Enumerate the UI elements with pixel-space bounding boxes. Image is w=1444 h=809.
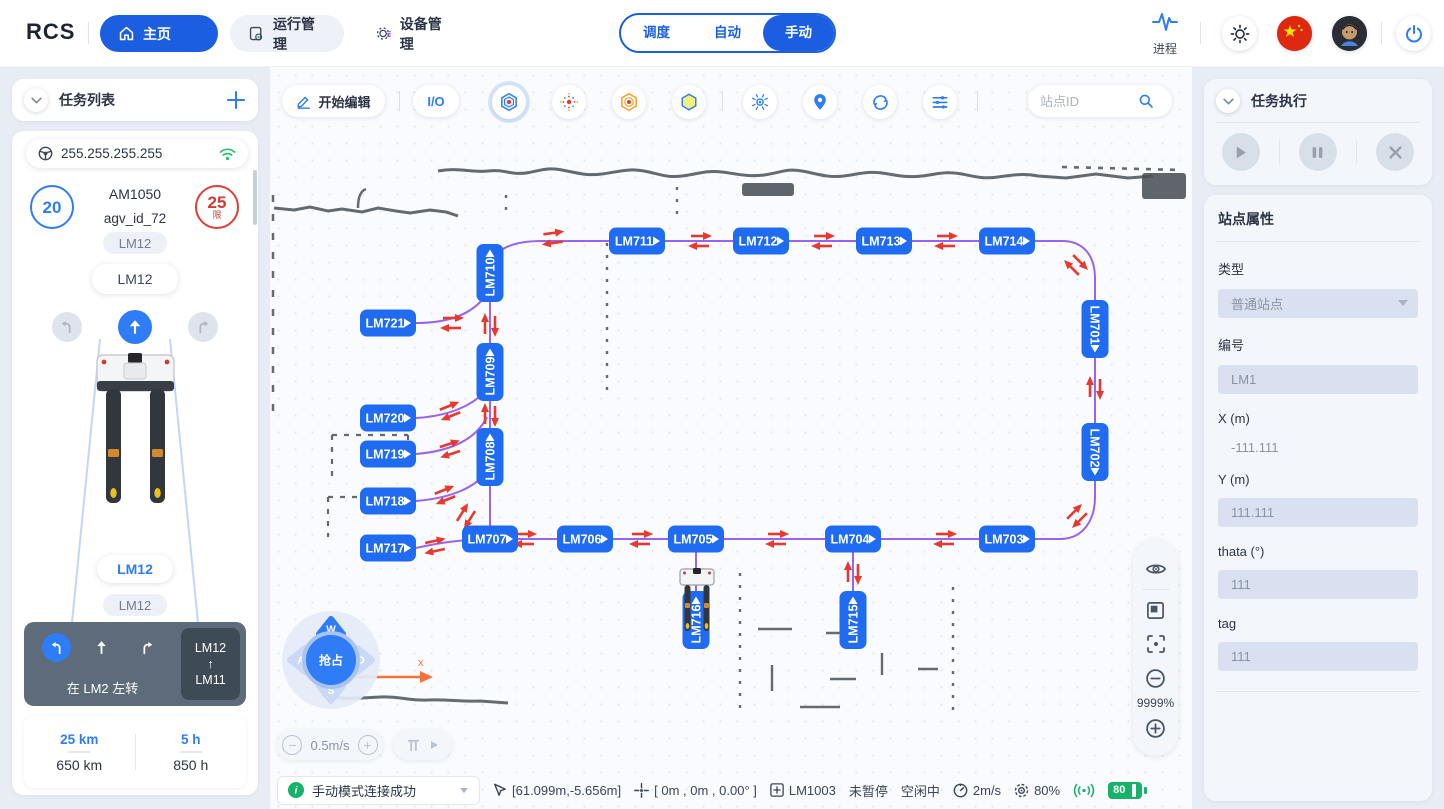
speed-increase-button[interactable]: + <box>358 735 378 755</box>
start-edit-button[interactable]: 开始编辑 <box>282 85 385 117</box>
svg-text:LM706: LM706 <box>563 533 602 547</box>
sun-icon <box>1230 24 1250 44</box>
signal-icon <box>1073 783 1095 798</box>
svg-text:LM705: LM705 <box>674 533 713 547</box>
forklift-top-view <box>97 353 174 503</box>
agv-ip-value: 255.255.255.255 <box>61 146 211 161</box>
wifi-icon <box>219 147 236 161</box>
svg-text:LM718: LM718 <box>366 495 405 509</box>
turn-left-indicator[interactable] <box>52 312 82 342</box>
app-logo: RCS <box>26 19 75 45</box>
eye-icon <box>1145 561 1167 577</box>
cursor-position: [61.099m,-5.656m] <box>493 783 621 798</box>
play-icon <box>1233 145 1248 160</box>
scrollbar-thumb[interactable] <box>253 170 257 225</box>
minimap-button[interactable] <box>1143 597 1169 623</box>
svg-text:LM701: LM701 <box>1088 306 1102 345</box>
manual-joystick[interactable]: W A S D 抢占 <box>281 610 381 710</box>
mode-manual[interactable]: 手动 <box>763 15 834 51</box>
collapse-task-list-button[interactable] <box>24 88 48 112</box>
distance-stats: 25 km650 km <box>24 732 135 773</box>
speed-value: 0.5m/s <box>310 738 349 753</box>
field-x-value[interactable]: -111.111 <box>1218 440 1418 455</box>
map-view-rail: 9999% <box>1133 540 1178 756</box>
search-icon[interactable] <box>1138 93 1154 109</box>
turn-right-icon <box>139 640 155 656</box>
svg-text:LM710: LM710 <box>484 258 498 297</box>
station-LM702[interactable]: LM702 <box>1082 423 1109 481</box>
zoom-in-icon <box>1145 718 1166 739</box>
info-icon: i <box>288 782 304 798</box>
tab-home[interactable]: 主页 <box>100 15 218 52</box>
zoom-in-button[interactable] <box>1143 715 1169 741</box>
field-id-label: 编号 <box>1218 335 1418 354</box>
target-icon <box>1014 783 1029 798</box>
task-cancel-button[interactable] <box>1376 133 1414 171</box>
edit-pen-icon <box>296 94 311 109</box>
tab-device-management[interactable]: 设备管理 <box>358 15 464 52</box>
focus-icon <box>1146 634 1166 654</box>
current-station-pill: LM12 <box>103 232 167 254</box>
manual-speed-control: − 0.5m/s + <box>277 730 383 760</box>
divider <box>1143 589 1169 590</box>
area-hexagon-icon <box>678 91 700 113</box>
field-theta-input[interactable]: 111 <box>1218 570 1418 599</box>
svg-text:LM709: LM709 <box>484 357 498 396</box>
station-LM720[interactable]: LM720 <box>360 405 416 432</box>
tab-home-label: 主页 <box>143 24 171 44</box>
add-task-icon[interactable] <box>226 90 246 110</box>
refresh-icon <box>870 92 891 113</box>
io-label: I/O <box>427 94 444 109</box>
station-LM710[interactable]: LM710 <box>477 244 504 302</box>
rcs-app: RCS 主页 运行管理 设备管理 调度 自动 手动 进程 <box>0 0 1444 809</box>
select-chevron-icon <box>1398 300 1408 306</box>
svg-text:LM704: LM704 <box>831 533 870 547</box>
station-LM703[interactable]: LM703 <box>979 526 1035 553</box>
joystick-preempt-button[interactable]: 抢占 <box>304 633 358 687</box>
task-list-header: 任务列表 <box>12 79 258 121</box>
svg-text:i: i <box>295 786 298 797</box>
filter-settings-button[interactable] <box>923 85 957 119</box>
chevron-down-icon <box>31 97 42 104</box>
map-walls <box>273 167 1182 711</box>
station-LM705[interactable]: LM705 <box>668 526 724 553</box>
nav-segment-card: LM12 ↑ LM11 <box>181 628 240 700</box>
steering-wheel-icon <box>38 146 53 161</box>
divider <box>977 91 978 111</box>
field-theta-label: thata (°) <box>1218 544 1418 559</box>
point-cloud-icon <box>558 91 580 113</box>
layer-robot-toggle[interactable] <box>492 85 526 119</box>
nav-turn-right-button[interactable] <box>132 633 161 662</box>
lidar-icon <box>749 91 771 113</box>
divider <box>88 22 89 44</box>
field-tag-label: tag <box>1218 616 1418 631</box>
svg-text:LM712: LM712 <box>739 235 778 249</box>
language-flag-button[interactable] <box>1277 16 1312 51</box>
route-arrow <box>436 398 465 424</box>
status-message: 手动模式连接成功 <box>312 781 451 800</box>
go-straight-indicator[interactable] <box>118 310 152 344</box>
station-LM721[interactable]: LM721 <box>360 310 416 337</box>
task-exec-title: 任务执行 <box>1251 91 1307 111</box>
agv-model: AM1050 <box>75 186 195 202</box>
divider <box>399 91 400 111</box>
nav-from-station: LM12 <box>195 641 226 655</box>
divider <box>722 91 723 111</box>
next-station-pill[interactable]: LM12 <box>92 264 178 294</box>
io-button[interactable]: I/O <box>413 85 459 117</box>
start-edit-label: 开始编辑 <box>318 92 370 111</box>
task-list-sidebar: 任务列表 <box>0 67 270 809</box>
field-y-input[interactable]: 111.111 <box>1218 498 1418 527</box>
waveform-icon <box>1152 12 1178 32</box>
avatar-icon <box>1332 16 1367 51</box>
route-arrow <box>540 227 566 248</box>
turn-right-icon <box>195 319 211 335</box>
tab-ops-label: 运行管理 <box>273 14 326 54</box>
svg-text:LM717: LM717 <box>366 542 405 556</box>
pause-state: 未暂停 <box>849 781 888 800</box>
svg-text:LM715: LM715 <box>847 605 861 644</box>
crosshair-icon <box>634 783 649 798</box>
tab-device-label: 设备管理 <box>400 14 446 54</box>
power-button[interactable] <box>1396 16 1431 51</box>
top-navbar: RCS 主页 运行管理 设备管理 调度 自动 手动 进程 <box>0 0 1444 67</box>
device-icon <box>376 24 392 43</box>
turn-left-icon <box>59 319 75 335</box>
speed-limit-badge: 25限 <box>195 185 239 229</box>
station-LM704[interactable]: LM704 <box>825 526 881 553</box>
nav-turn-left-button[interactable] <box>42 633 71 662</box>
nav-to-station: LM11 <box>195 673 225 687</box>
process-button[interactable]: 进程 <box>1142 12 1188 57</box>
idle-state: 空闲中 <box>901 781 940 800</box>
station-LM709[interactable]: LM709 <box>477 343 504 401</box>
mode-switch: 调度 自动 手动 <box>619 13 836 53</box>
visibility-button[interactable] <box>1143 556 1169 582</box>
divider <box>1381 22 1382 44</box>
station-LM718[interactable]: LM718 <box>360 488 416 515</box>
layer-pointcloud-toggle[interactable] <box>552 85 586 119</box>
power-icon <box>1404 24 1424 44</box>
status-bar: i 手动模式连接成功 [61.099m,-5.656m] [ 0m , 0m ,… <box>277 773 1182 807</box>
field-tag-input[interactable]: 111 <box>1218 642 1418 671</box>
map-pin-icon <box>810 92 830 112</box>
svg-text:LM713: LM713 <box>862 235 901 249</box>
field-type-select[interactable]: 普通站点 <box>1218 289 1418 318</box>
center-focus-button[interactable] <box>1143 631 1169 657</box>
agv-card: 255.255.255.255 20 25限 AM1050 agv_id_72 … <box>12 131 258 795</box>
station-LM713[interactable]: LM713 <box>856 228 912 255</box>
field-type-label: 类型 <box>1218 259 1418 278</box>
task-list-title: 任务列表 <box>59 90 226 110</box>
svg-text:LM703: LM703 <box>985 533 1024 547</box>
field-type-value: 普通站点 <box>1231 294 1283 313</box>
task-play-button[interactable] <box>1222 133 1260 171</box>
speed-decrease-button[interactable]: − <box>282 735 302 755</box>
fork-play-icon <box>429 740 439 750</box>
station-LM701[interactable]: LM701 <box>1082 300 1109 358</box>
svg-text:LM721: LM721 <box>366 317 405 331</box>
field-y-label: Y (m) <box>1218 472 1418 487</box>
field-y-value: 111.111 <box>1231 505 1274 520</box>
route-arrow <box>436 437 464 462</box>
pause-icon <box>1311 146 1324 159</box>
divider <box>1200 22 1201 44</box>
fork-icon <box>406 738 421 753</box>
station-properties-title: 站点属性 <box>1218 209 1418 229</box>
field-id-value: LM1 <box>1231 372 1256 387</box>
tab-operation-management[interactable]: 运行管理 <box>230 15 344 52</box>
user-avatar[interactable] <box>1332 16 1367 51</box>
route-arrow <box>431 482 460 508</box>
divider <box>1216 691 1420 692</box>
status-message-select[interactable]: i 手动模式连接成功 <box>277 776 480 805</box>
svg-text:LM711: LM711 <box>615 235 653 249</box>
navigation-card: LM12 ↑ LM11 在 LM2 左转 <box>24 622 246 706</box>
task-execution-card: 任务执行 <box>1204 79 1432 185</box>
station-LM708[interactable]: LM708 <box>477 428 504 486</box>
refresh-button[interactable] <box>863 85 897 119</box>
plus-square-icon <box>770 783 784 797</box>
route-arrow <box>440 314 464 332</box>
station-LM715[interactable]: LM715 <box>840 591 867 649</box>
speedometer-icon <box>953 783 968 798</box>
svg-text:LM708: LM708 <box>484 442 498 481</box>
mode-dispatch[interactable]: 调度 <box>621 15 692 51</box>
mode-auto[interactable]: 自动 <box>692 15 763 51</box>
collapse-task-exec-button[interactable] <box>1216 89 1240 113</box>
joystick-preempt-label: 抢占 <box>319 653 343 668</box>
nav-straight-button[interactable] <box>87 633 116 662</box>
hours-stats: 5 h850 h <box>136 732 247 773</box>
sliders-icon <box>930 92 950 112</box>
chevron-down-icon <box>1223 98 1234 105</box>
speed-badge: 20 <box>30 185 74 229</box>
field-theta-value: 111 <box>1231 577 1251 592</box>
battery-level: 80 <box>1113 784 1125 796</box>
zoom-out-icon <box>1145 668 1166 689</box>
turn-right-indicator[interactable] <box>188 312 218 342</box>
svg-text:LM719: LM719 <box>366 448 405 462</box>
field-tag-value: 111 <box>1231 649 1251 664</box>
process-label: 进程 <box>1142 40 1188 57</box>
station-LM712[interactable]: LM712 <box>733 228 789 255</box>
turn-left-icon <box>49 640 65 656</box>
axis-x-label: x <box>418 657 424 669</box>
up-arrow-icon <box>126 318 144 336</box>
fork-control[interactable] <box>393 730 452 760</box>
station-properties-panel: 站点属性 类型 普通站点 编号 LM1 X (m) -111.111 Y (m)… <box>1204 195 1432 801</box>
minimap-icon <box>1146 601 1165 620</box>
dropdown-chevron-icon <box>459 787 469 794</box>
theme-toggle-button[interactable] <box>1222 16 1257 51</box>
robot-hexagon-icon <box>498 91 520 113</box>
map-canvas[interactable]: LM710LM709LM708LM711LM712LM713LM714LM701… <box>270 67 1192 809</box>
slam-map: LM710LM709LM708LM711LM712LM713LM714LM701… <box>270 67 1192 809</box>
svg-text:LM720: LM720 <box>366 412 405 426</box>
svg-text:LM702: LM702 <box>1088 429 1102 468</box>
china-flag-icon <box>1277 16 1312 51</box>
svg-text:LM716: LM716 <box>690 605 704 644</box>
zoom-level: 9999% <box>1137 696 1174 710</box>
battery-indicator: 80 <box>1108 782 1142 799</box>
lidar-scan-button[interactable] <box>743 85 777 119</box>
current-station: LM1003 <box>770 783 836 798</box>
station-search-input[interactable] <box>1040 94 1130 109</box>
odometer-card: 25 km650 km 5 h850 h <box>24 716 246 788</box>
nav-instruction: 在 LM2 左转 <box>24 678 181 697</box>
up-arrow-icon <box>93 639 110 656</box>
speed-state: 2m/s <box>953 783 1001 798</box>
close-icon <box>1389 146 1402 159</box>
zoom-out-button[interactable] <box>1143 665 1169 691</box>
station-hexagon-icon <box>618 91 640 113</box>
operation-icon <box>248 25 265 43</box>
field-x-label: X (m) <box>1218 411 1418 426</box>
signal-indicator <box>1073 783 1095 798</box>
nav-direction-arrow: ↑ <box>207 657 213 671</box>
station-LM706[interactable]: LM706 <box>557 526 613 553</box>
svg-text:LM714: LM714 <box>985 235 1024 249</box>
station-LM717[interactable]: LM717 <box>360 535 416 562</box>
cursor-icon <box>493 783 507 797</box>
station-search <box>1028 85 1172 117</box>
station-LM707[interactable]: LM707 <box>462 526 518 553</box>
svg-text:LM707: LM707 <box>468 533 507 547</box>
layer-area-toggle[interactable] <box>672 85 706 119</box>
task-execution-sidebar: 任务执行 站点属性 类型 普通站点 <box>1192 67 1444 809</box>
localization-quality: 80% <box>1014 783 1060 798</box>
robot-pose: [ 0m , 0m , 0.00° ] <box>634 783 757 798</box>
agv-id: agv_id_72 <box>75 211 195 226</box>
station-LM714[interactable]: LM714 <box>979 228 1035 255</box>
target-station-pill[interactable]: LM12 <box>97 555 173 583</box>
station-LM719[interactable]: LM719 <box>360 441 416 468</box>
agv-ip-field[interactable]: 255.255.255.255 <box>26 139 248 168</box>
station-LM711[interactable]: LM711 <box>609 228 665 255</box>
route-paths <box>416 241 1095 620</box>
field-id-input[interactable]: LM1 <box>1218 365 1418 394</box>
task-pause-button[interactable] <box>1299 133 1337 171</box>
after-station-pill: LM12 <box>103 594 167 616</box>
route-arrow <box>1061 250 1091 280</box>
locate-button[interactable] <box>803 85 837 119</box>
home-icon <box>118 25 135 42</box>
layer-station-toggle[interactable] <box>612 85 646 119</box>
